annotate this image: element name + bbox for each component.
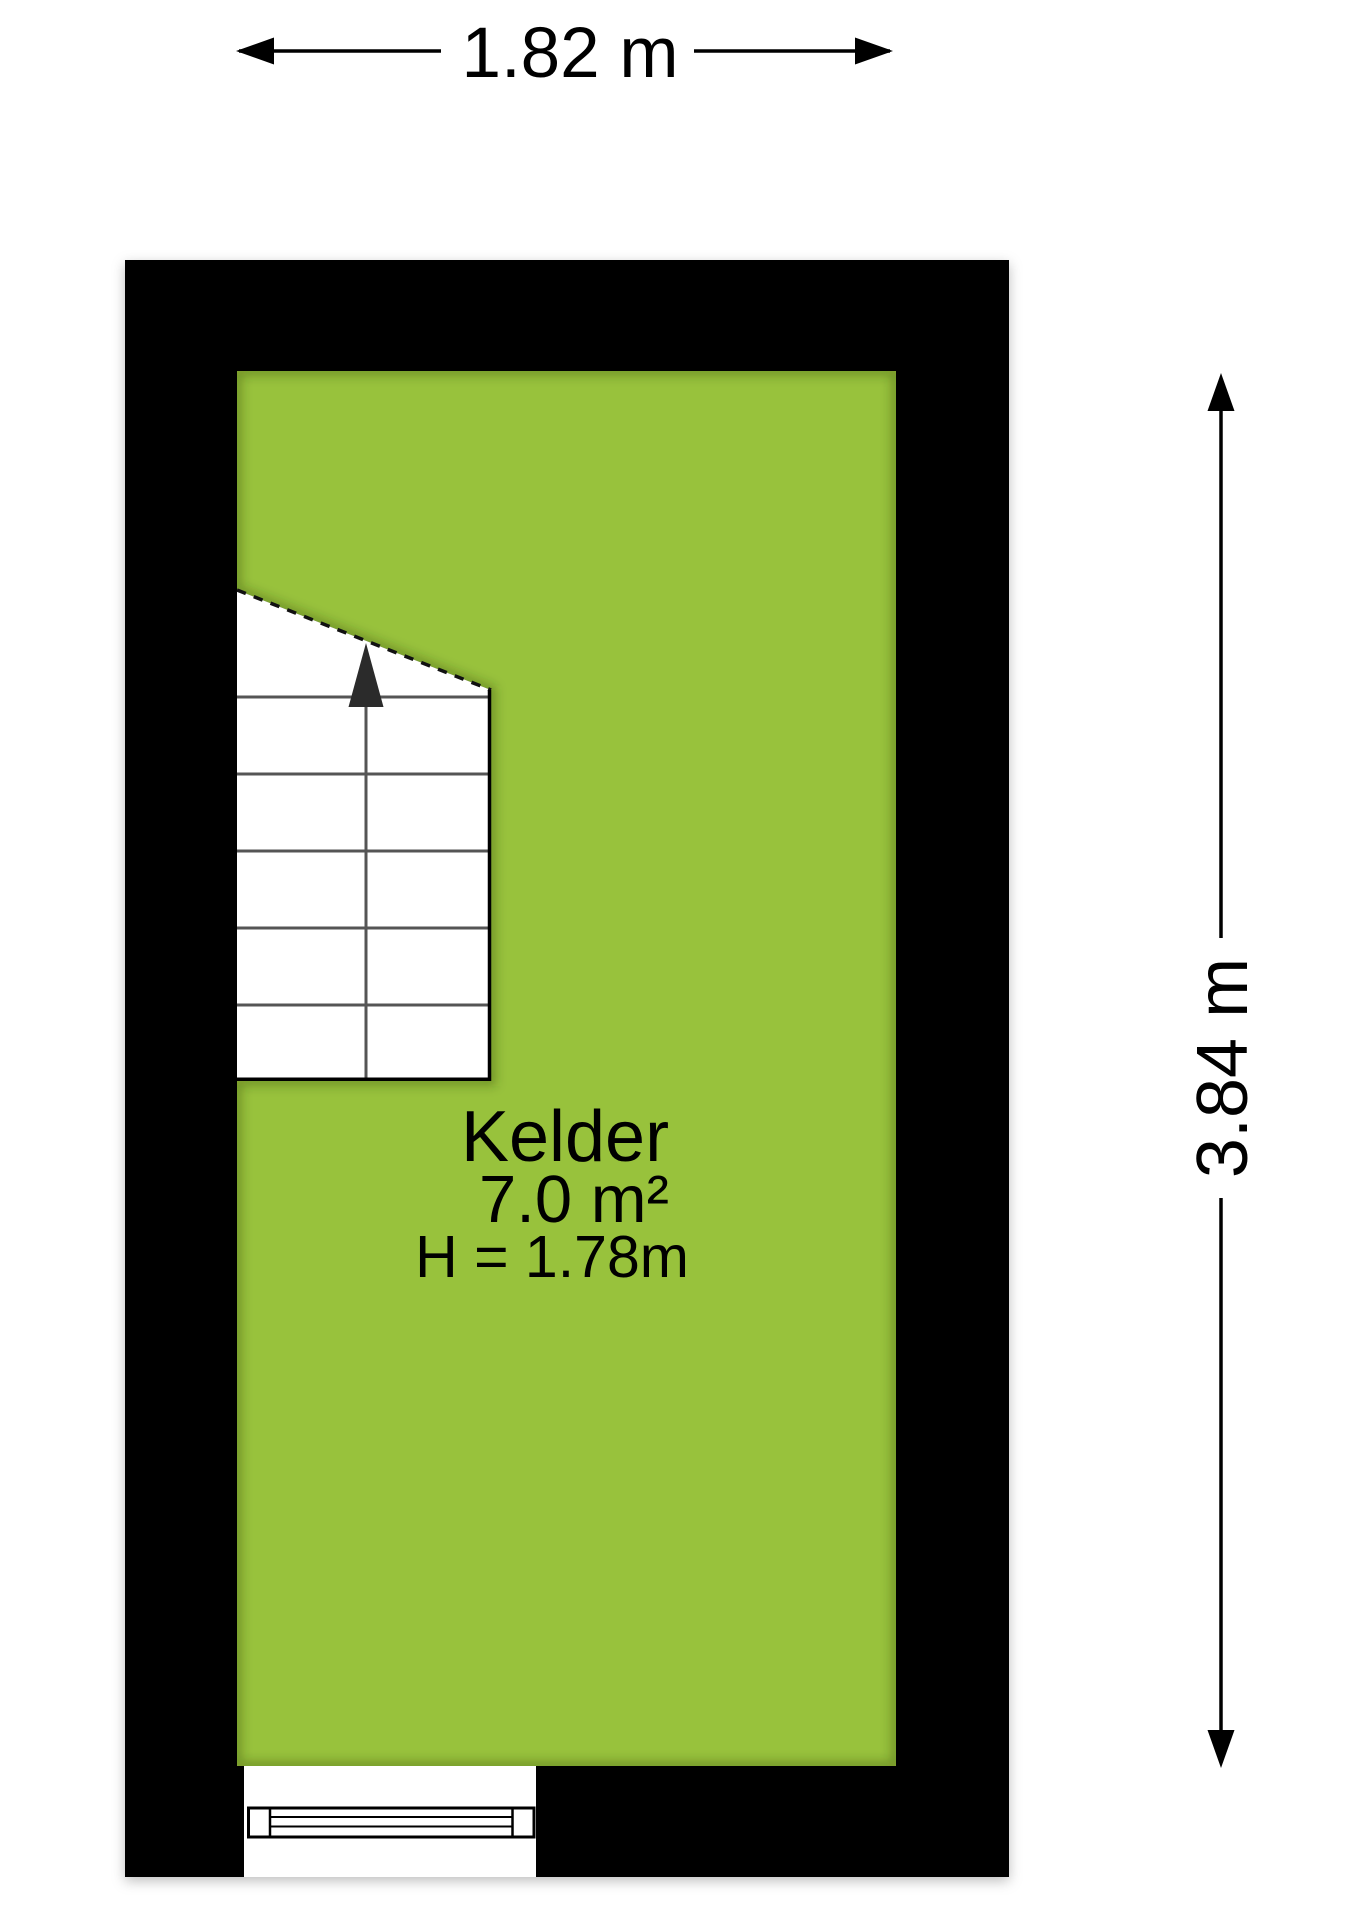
svg-text:1.82 m: 1.82 m: [461, 14, 678, 93]
svg-text:H = 1.78m: H = 1.78m: [415, 1224, 689, 1290]
svg-text:3.84 m: 3.84 m: [1183, 958, 1263, 1178]
